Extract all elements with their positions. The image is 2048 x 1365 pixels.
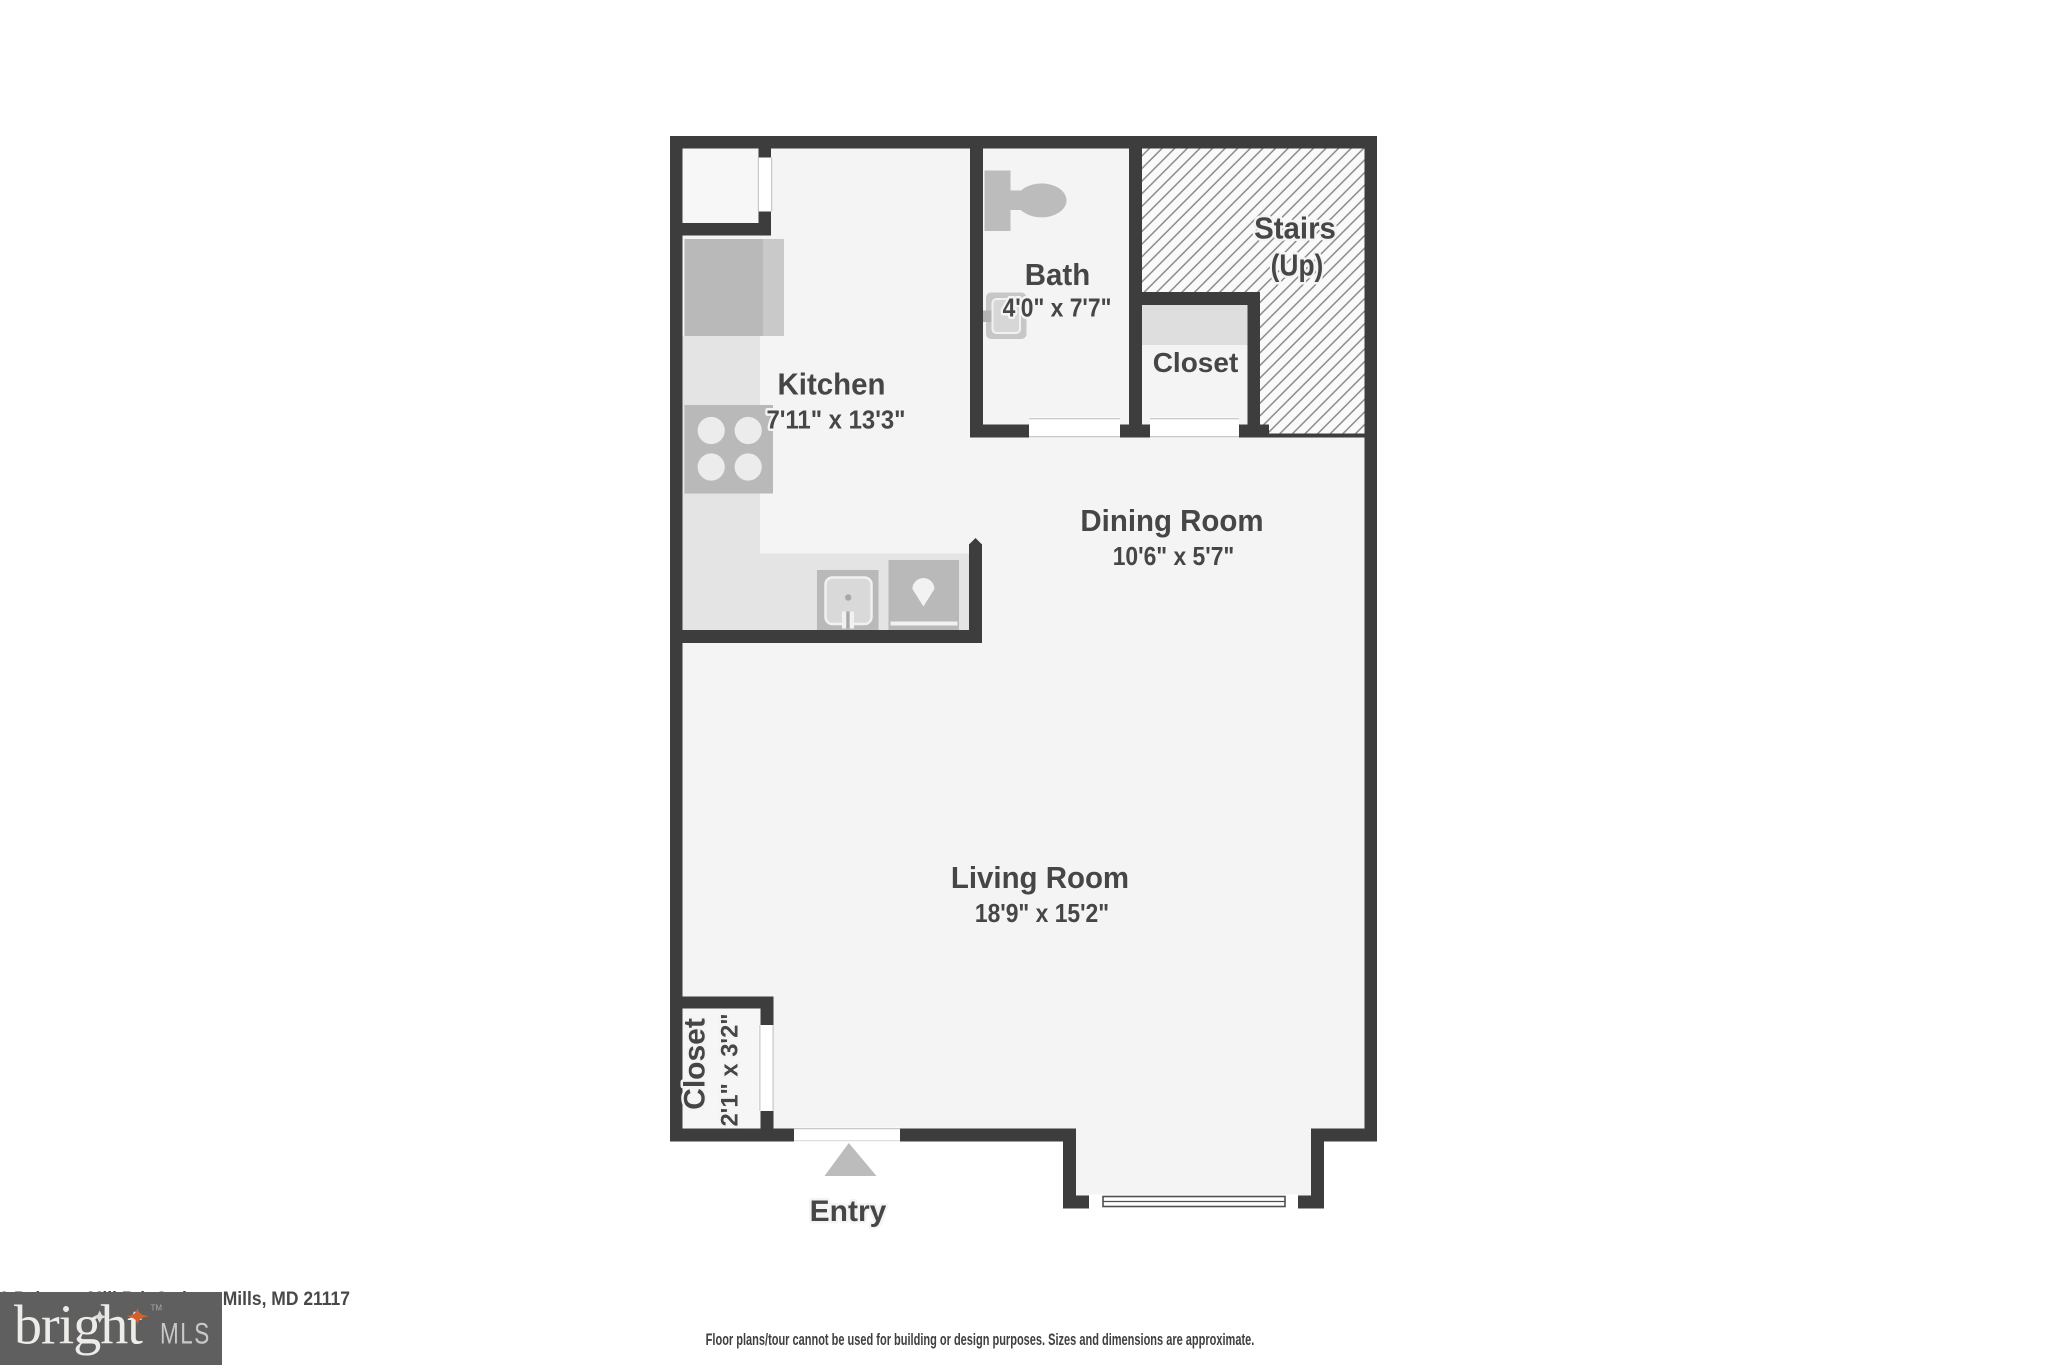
svg-text:Dining Room: Dining Room: [1080, 504, 1263, 538]
svg-text:MLS: MLS: [160, 1316, 211, 1350]
svg-text:bright: bright: [14, 1295, 143, 1357]
svg-text:4'0" x 7'7": 4'0" x 7'7": [1003, 294, 1112, 323]
svg-text:2'1" x 3'2": 2'1" x 3'2": [716, 1013, 743, 1126]
svg-text:TM: TM: [151, 1304, 163, 1313]
svg-text:(Up): (Up): [1271, 249, 1324, 283]
svg-text:Closet: Closet: [679, 1018, 712, 1110]
svg-text:Floor plans/tour cannot be use: Floor plans/tour cannot be used for buil…: [706, 1331, 1255, 1350]
svg-text:Kitchen: Kitchen: [778, 368, 886, 402]
svg-text:Closet: Closet: [1153, 347, 1239, 378]
svg-text:7'11" x 13'3": 7'11" x 13'3": [766, 406, 905, 435]
svg-text:Entry: Entry: [810, 1195, 887, 1228]
svg-text:18'9" x 15'2": 18'9" x 15'2": [975, 900, 1109, 929]
svg-text:Bath: Bath: [1025, 258, 1090, 292]
svg-text:10'6" x 5'7": 10'6" x 5'7": [1113, 543, 1235, 572]
svg-text:Living Room: Living Room: [951, 861, 1129, 895]
svg-text:Stairs: Stairs: [1254, 212, 1336, 246]
